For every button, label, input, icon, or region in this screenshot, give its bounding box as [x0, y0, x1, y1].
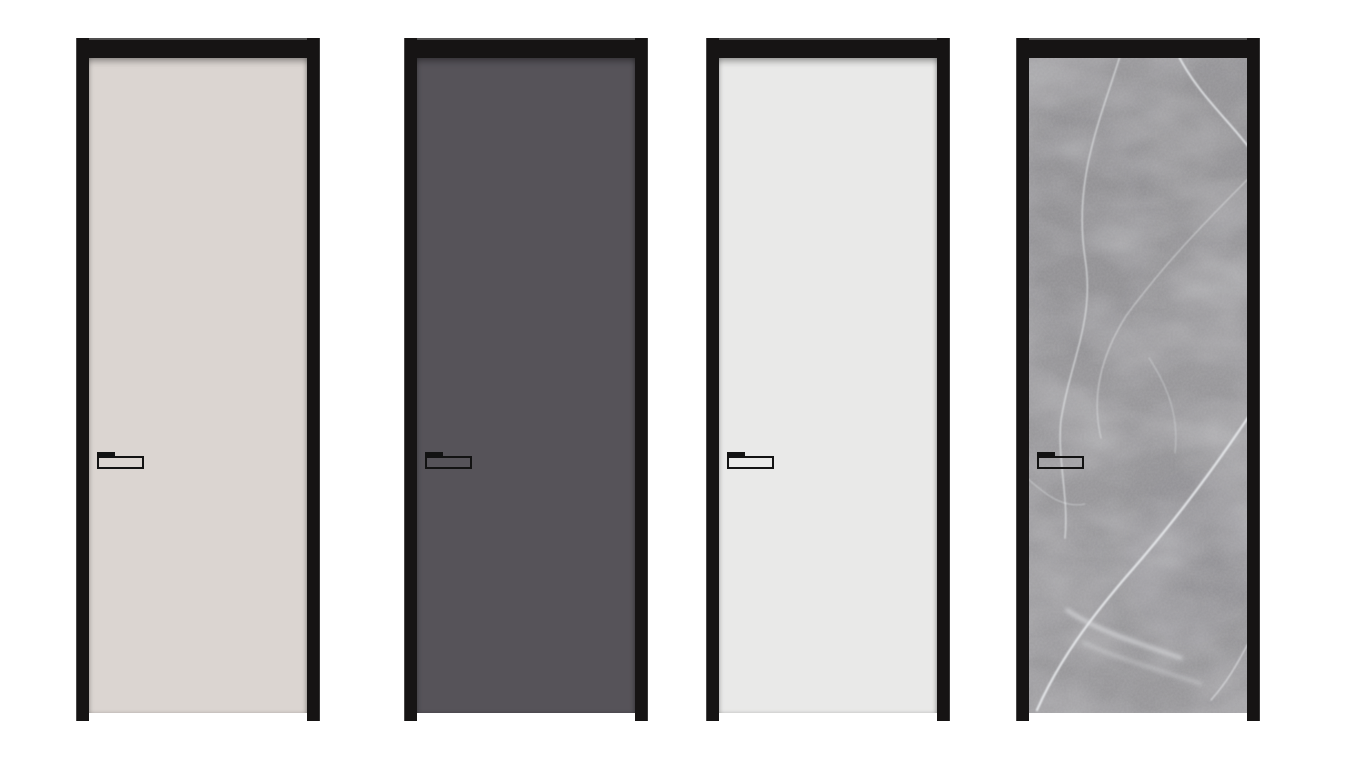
- door-panel: [719, 58, 937, 713]
- door-panel: [1029, 58, 1247, 713]
- door-frame-head: [404, 38, 648, 58]
- door-frame-head: [706, 38, 950, 58]
- door-cream: [76, 38, 320, 721]
- door-handle-latch-tab: [425, 452, 443, 458]
- door-dark-gray: [404, 38, 648, 721]
- door-frame-head: [1016, 38, 1260, 58]
- door-frame-left-jamb: [1016, 38, 1029, 721]
- door-frame-left-jamb: [404, 38, 417, 721]
- door-marble: [1016, 38, 1260, 721]
- door-handle-latch-tab: [1037, 452, 1055, 458]
- door-handle: [727, 456, 774, 469]
- door-frame-right-jamb: [635, 38, 648, 721]
- door-frame-left-jamb: [76, 38, 89, 721]
- door-handle-latch-tab: [727, 452, 745, 458]
- marble-texture: [1029, 58, 1247, 713]
- door-handle: [97, 456, 144, 469]
- door-frame-right-jamb: [937, 38, 950, 721]
- product-image-canvas: [0, 0, 1347, 758]
- door-frame-right-jamb: [307, 38, 320, 721]
- door-frame-right-jamb: [1247, 38, 1260, 721]
- door-frame-head: [76, 38, 320, 58]
- door-handle: [425, 456, 472, 469]
- door-handle: [1037, 456, 1084, 469]
- door-frame-left-jamb: [706, 38, 719, 721]
- door-panel: [89, 58, 307, 713]
- door-white: [706, 38, 950, 721]
- door-handle-latch-tab: [97, 452, 115, 458]
- door-panel: [417, 58, 635, 713]
